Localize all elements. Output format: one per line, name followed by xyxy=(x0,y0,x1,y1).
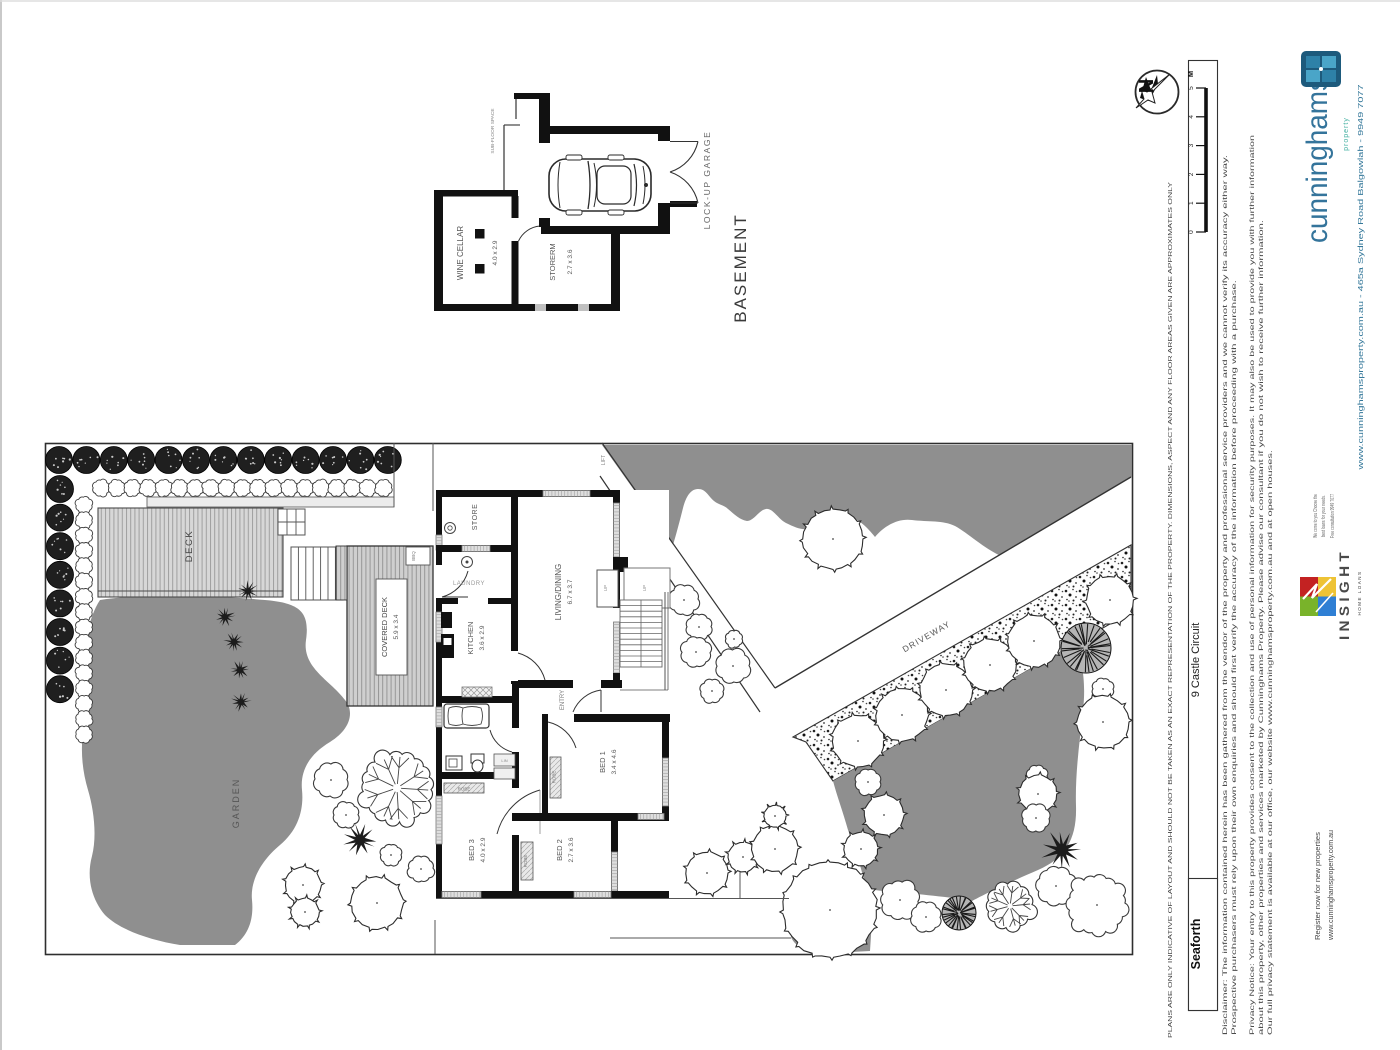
svg-text:3.4 x 4.6: 3.4 x 4.6 xyxy=(611,749,618,774)
svg-text:4: 4 xyxy=(1188,115,1195,119)
svg-text:LAUNDRY: LAUNDRY xyxy=(453,581,485,587)
svg-text:cunninghams: cunninghams xyxy=(1301,77,1334,243)
svg-text:SUB-FLOOR SPACE: SUB-FLOOR SPACE xyxy=(490,108,496,153)
svg-text:PLANS ARE ONLY INDICATIVE OF L: PLANS ARE ONLY INDICATIVE OF LAYOUT AND … xyxy=(1168,182,1174,1038)
svg-text:COVERED DECK: COVERED DECK xyxy=(380,597,389,657)
svg-text:GARDEN: GARDEN xyxy=(231,778,241,829)
svg-text:HOME LOANS: HOME LOANS xyxy=(1357,570,1362,615)
svg-text:property: property xyxy=(1343,117,1350,151)
svg-text:Seaforth: Seaforth xyxy=(1189,919,1203,970)
svg-text:2.7 x 3.6: 2.7 x 3.6 xyxy=(567,249,574,274)
svg-text:3: 3 xyxy=(1188,143,1195,147)
svg-text:6.7 x 3.7: 6.7 x 3.7 xyxy=(567,579,574,604)
svg-text:KITCHEN: KITCHEN xyxy=(466,622,475,655)
svg-text:M: M xyxy=(1186,71,1195,77)
svg-text:9 Castle Circuit: 9 Castle Circuit xyxy=(1190,623,1202,698)
svg-text:best loans for your needs.: best loans for your needs. xyxy=(1321,495,1327,537)
svg-text:0: 0 xyxy=(1188,230,1195,234)
svg-text:We come to you Choose the: We come to you Choose the xyxy=(1313,494,1319,538)
svg-text:BED 2: BED 2 xyxy=(555,839,564,861)
svg-text:N: N xyxy=(1136,79,1158,93)
svg-text:3.6 x 2.9: 3.6 x 2.9 xyxy=(479,625,486,650)
svg-text:LIN: LIN xyxy=(501,758,507,763)
svg-text:STORE: STORE xyxy=(472,504,479,531)
svg-text:4.0 x 2.9: 4.0 x 2.9 xyxy=(480,837,487,862)
svg-text:UP: UP xyxy=(603,585,608,591)
svg-text:Disclaimer: The information co: Disclaimer: The information contained he… xyxy=(1222,155,1229,1035)
svg-text:ENTRY: ENTRY xyxy=(560,690,566,710)
svg-text:STORERM: STORERM xyxy=(548,243,557,280)
svg-text:www.cunninghamsproperty.com.au: www.cunninghamsproperty.com.au - 465a Sy… xyxy=(1356,85,1365,471)
svg-text:4.0 x 2.9: 4.0 x 2.9 xyxy=(492,240,499,265)
svg-text:BED 1: BED 1 xyxy=(598,751,607,773)
svg-text:BBQ: BBQ xyxy=(411,551,416,561)
svg-text:ROBE: ROBE xyxy=(458,787,471,792)
svg-text:5: 5 xyxy=(1188,86,1195,90)
svg-text:LOCK-UP GARAGE: LOCK-UP GARAGE xyxy=(702,131,712,230)
svg-text:LIVING/DINING: LIVING/DINING xyxy=(554,564,563,620)
svg-text:Our full privacy statement is: Our full privacy statement is available … xyxy=(1267,450,1274,1035)
svg-text:LIFT: LIFT xyxy=(601,455,607,465)
svg-text:BASEMENT: BASEMENT xyxy=(731,213,750,323)
svg-text:UP: UP xyxy=(642,585,647,591)
svg-text:ROBE: ROBE xyxy=(523,855,528,868)
svg-text:INSIGHT: INSIGHT xyxy=(1336,548,1352,640)
svg-text:Privacy Notice: Your entry to: Privacy Notice: Your entry to this prope… xyxy=(1249,134,1256,1035)
svg-text:BED 3: BED 3 xyxy=(467,839,476,861)
svg-text:WINE CELLAR: WINE CELLAR xyxy=(456,226,465,280)
svg-text:1: 1 xyxy=(1188,201,1195,205)
svg-text:about this property, other pro: about this property, other properties an… xyxy=(1258,220,1265,1035)
svg-text:2: 2 xyxy=(1188,172,1195,176)
svg-text:2.7 x 3.6: 2.7 x 3.6 xyxy=(568,837,575,862)
svg-text:ROBE: ROBE xyxy=(552,771,557,784)
svg-text:DECK: DECK xyxy=(184,530,195,562)
svg-text:Prospective purchasers must re: Prospective purchasers must rely upon th… xyxy=(1231,280,1238,1035)
svg-text:Free consultation 9949 7077: Free consultation 9949 7077 xyxy=(1330,494,1336,538)
svg-text:Register now for new propertie: Register now for new properties xyxy=(1315,831,1322,940)
svg-text:5.9 x 3.4: 5.9 x 3.4 xyxy=(393,614,400,639)
svg-text:www.cunninghamsproperty.com.au: www.cunninghamsproperty.com.au xyxy=(1328,830,1335,941)
